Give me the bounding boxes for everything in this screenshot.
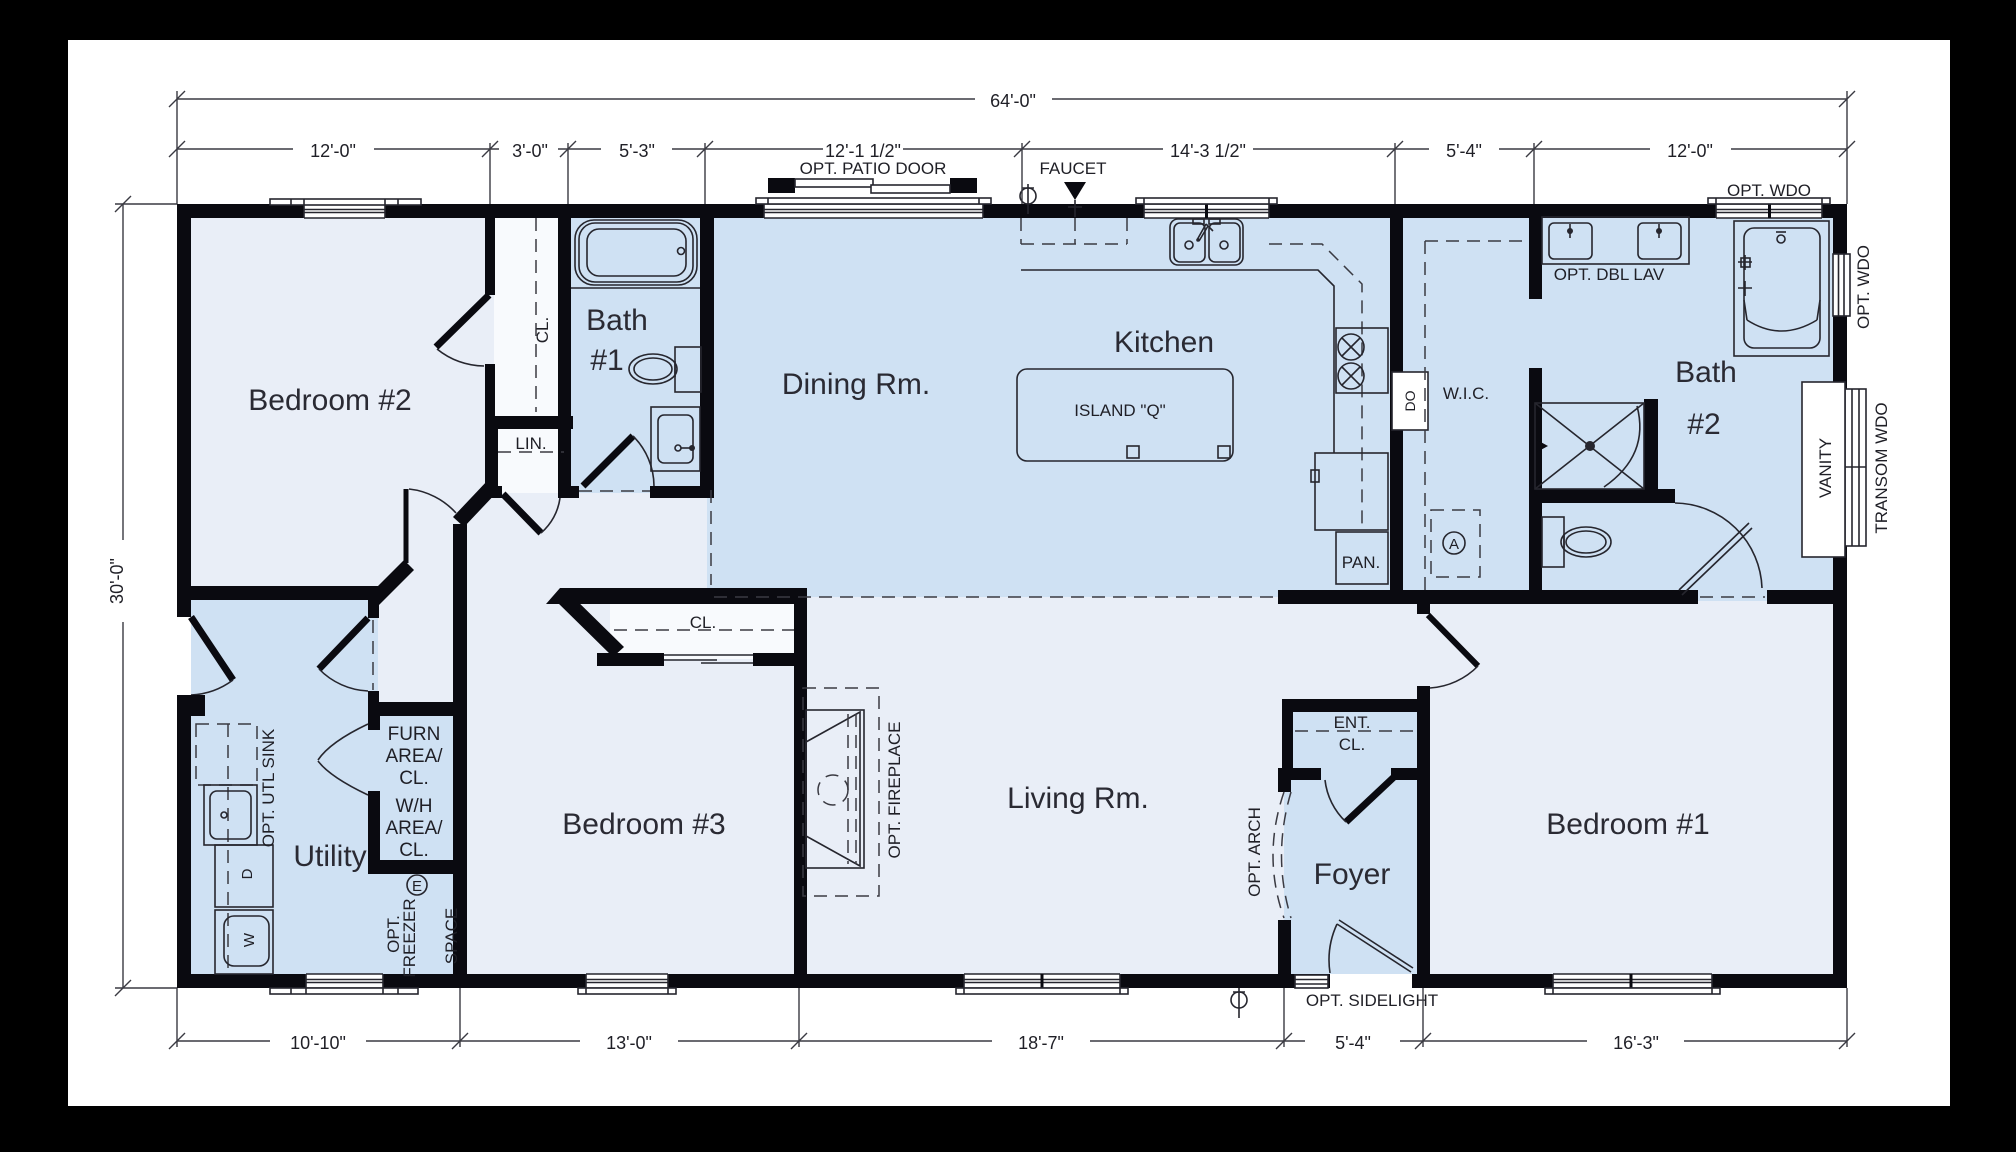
svg-text:OPT. UTL SINK: OPT. UTL SINK bbox=[259, 728, 278, 847]
svg-text:CL.: CL. bbox=[399, 768, 429, 789]
svg-text:Living Rm.: Living Rm. bbox=[1007, 782, 1149, 815]
svg-text:Utility: Utility bbox=[293, 840, 366, 873]
svg-text:14'-3 1/2": 14'-3 1/2" bbox=[1170, 141, 1246, 161]
svg-text:W: W bbox=[241, 932, 258, 947]
svg-text:OPT. WDO: OPT. WDO bbox=[1854, 245, 1873, 329]
svg-text:AREA/: AREA/ bbox=[385, 818, 443, 839]
svg-text:FURN: FURN bbox=[388, 724, 441, 745]
svg-text:ENT.: ENT. bbox=[1334, 713, 1371, 732]
svg-text:12'-0": 12'-0" bbox=[310, 141, 356, 161]
svg-text:VANITY: VANITY bbox=[1816, 438, 1835, 498]
svg-text:OPT. DBL LAV: OPT. DBL LAV bbox=[1554, 265, 1665, 284]
svg-text:OPT. WDO: OPT. WDO bbox=[1727, 181, 1811, 200]
svg-text:FAUCET: FAUCET bbox=[1039, 159, 1106, 178]
svg-text:Kitchen: Kitchen bbox=[1114, 326, 1214, 359]
svg-text:5'-3": 5'-3" bbox=[619, 141, 655, 161]
svg-text:ISLAND "Q": ISLAND "Q" bbox=[1074, 401, 1165, 420]
svg-text:Bedroom #3: Bedroom #3 bbox=[562, 808, 725, 841]
svg-text:Bath: Bath bbox=[1675, 356, 1737, 389]
svg-text:30'-0": 30'-0" bbox=[107, 558, 127, 604]
svg-text:16'-3": 16'-3" bbox=[1613, 1033, 1659, 1053]
svg-text:5'-4": 5'-4" bbox=[1446, 141, 1482, 161]
svg-text:Bedroom #1: Bedroom #1 bbox=[1546, 808, 1709, 841]
svg-text:AREA/: AREA/ bbox=[385, 746, 443, 767]
svg-text:#2: #2 bbox=[1687, 408, 1720, 441]
svg-text:W.I.C.: W.I.C. bbox=[1443, 384, 1489, 403]
svg-text:Dining Rm.: Dining Rm. bbox=[782, 368, 930, 401]
svg-text:64'-0": 64'-0" bbox=[990, 91, 1036, 111]
svg-text:13'-0": 13'-0" bbox=[606, 1033, 652, 1053]
svg-text:Bedroom #2: Bedroom #2 bbox=[248, 384, 411, 417]
svg-text:TRANSOM WDO: TRANSOM WDO bbox=[1872, 402, 1891, 533]
svg-text:Foyer: Foyer bbox=[1314, 858, 1391, 891]
svg-text:3'-0": 3'-0" bbox=[512, 141, 548, 161]
svg-text:W/H: W/H bbox=[396, 796, 433, 817]
svg-text:18'-7": 18'-7" bbox=[1018, 1033, 1064, 1053]
svg-text:#1: #1 bbox=[590, 344, 623, 377]
svg-text:CL.: CL. bbox=[399, 840, 429, 861]
svg-text:DO: DO bbox=[1402, 390, 1418, 411]
svg-text:CL.: CL. bbox=[533, 317, 552, 343]
svg-text:OPT. SIDELIGHT: OPT. SIDELIGHT bbox=[1306, 991, 1438, 1010]
svg-text:12'-1 1/2": 12'-1 1/2" bbox=[825, 141, 901, 161]
svg-text:OPT. FIREPLACE: OPT. FIREPLACE bbox=[885, 722, 904, 859]
svg-text:LIN.: LIN. bbox=[515, 434, 546, 453]
svg-text:E: E bbox=[412, 878, 422, 895]
svg-text:SPACE: SPACE bbox=[442, 908, 461, 964]
svg-text:12'-0": 12'-0" bbox=[1667, 141, 1713, 161]
svg-text:D: D bbox=[239, 868, 256, 879]
svg-text:PAN.: PAN. bbox=[1342, 553, 1380, 572]
svg-text:10'-10": 10'-10" bbox=[290, 1033, 346, 1053]
svg-text:5'-4": 5'-4" bbox=[1335, 1033, 1371, 1053]
svg-text:OPT. PATIO DOOR: OPT. PATIO DOOR bbox=[800, 159, 947, 178]
svg-text:FREEZER: FREEZER bbox=[400, 898, 419, 977]
svg-text:Bath: Bath bbox=[586, 304, 648, 337]
svg-text:CL.: CL. bbox=[1339, 735, 1365, 754]
svg-text:A: A bbox=[1449, 536, 1459, 553]
svg-text:OPT. ARCH: OPT. ARCH bbox=[1245, 807, 1264, 897]
svg-text:CL.: CL. bbox=[690, 613, 716, 632]
